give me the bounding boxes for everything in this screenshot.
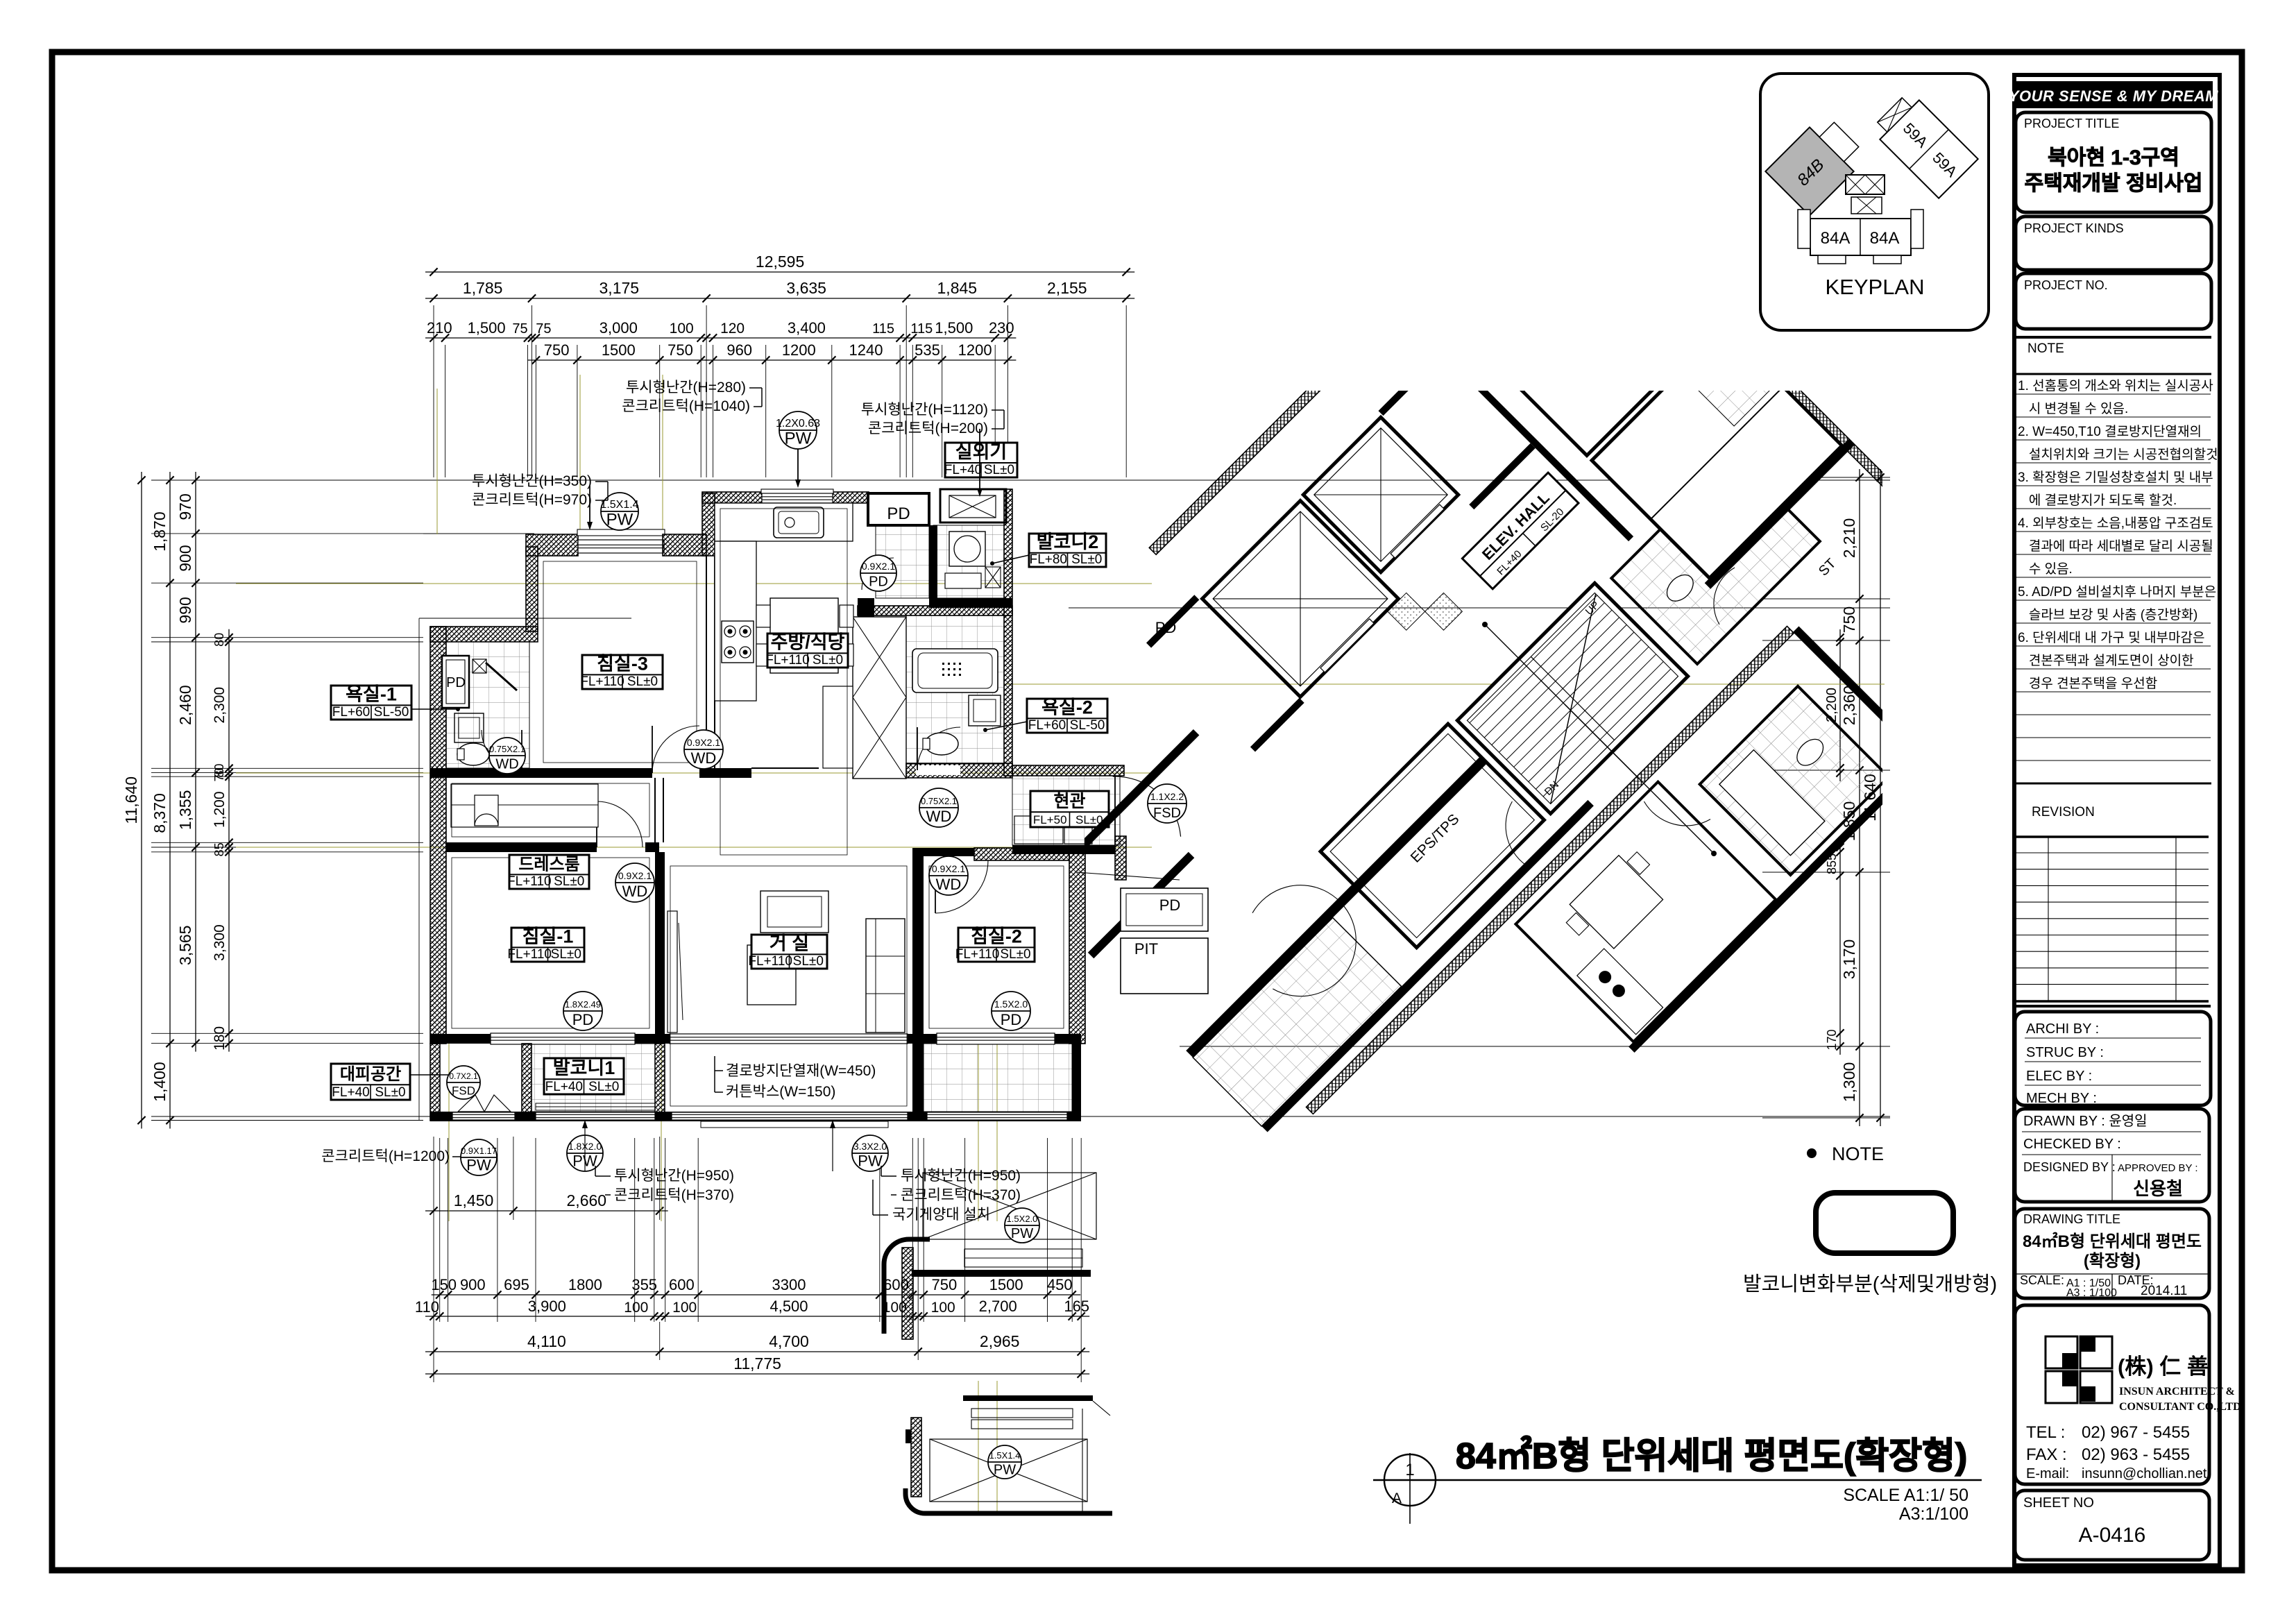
svg-text:북아현 1-3구역: 북아현 1-3구역 bbox=[2048, 146, 2179, 169]
svg-text:설치위치와 크기는 시공전협의할것.: 설치위치와 크기는 시공전협의할것. bbox=[2018, 447, 2222, 462]
svg-text:FL+40: FL+40 bbox=[332, 1085, 369, 1100]
svg-text:FL+110: FL+110 bbox=[507, 947, 552, 962]
svg-text:210: 210 bbox=[427, 319, 452, 337]
svg-text:1,870: 1,870 bbox=[151, 511, 169, 552]
svg-text:MECH BY :: MECH BY : bbox=[2026, 1091, 2097, 1106]
svg-text:투시형난간(H=280): 투시형난간(H=280) bbox=[626, 380, 746, 396]
svg-text:535: 535 bbox=[915, 341, 940, 359]
svg-text:165: 165 bbox=[1064, 1298, 1089, 1315]
svg-text:1,200: 1,200 bbox=[212, 791, 228, 828]
svg-text:355: 355 bbox=[631, 1276, 657, 1293]
svg-text:SCALE A1:1/ 50: SCALE A1:1/ 50 bbox=[1843, 1486, 1968, 1505]
svg-text:110: 110 bbox=[415, 1298, 439, 1316]
svg-text:SL±0: SL±0 bbox=[375, 1085, 405, 1100]
svg-text:견본주택과 설계도면이 상이한: 견본주택과 설계도면이 상이한 bbox=[2018, 653, 2194, 668]
svg-text:SCALE:: SCALE: bbox=[2020, 1273, 2064, 1287]
svg-text:3,170: 3,170 bbox=[1840, 940, 1858, 980]
svg-text:PROJECT TITLE: PROJECT TITLE bbox=[2024, 117, 2119, 130]
svg-text:84㎡B형 단위세대 평면도(확장형): 84㎡B형 단위세대 평면도(확장형) bbox=[1456, 1436, 1967, 1477]
svg-text:A3 : 1/100: A3 : 1/100 bbox=[2066, 1287, 2117, 1299]
svg-text:230: 230 bbox=[989, 319, 1014, 337]
svg-text:75: 75 bbox=[536, 321, 551, 337]
svg-text:PD: PD bbox=[572, 1011, 594, 1028]
svg-text:3300: 3300 bbox=[772, 1276, 806, 1293]
svg-text:SL±0: SL±0 bbox=[813, 653, 843, 668]
svg-text:PW: PW bbox=[994, 1462, 1016, 1477]
svg-text:1200: 1200 bbox=[782, 341, 816, 359]
svg-text:1,400: 1,400 bbox=[151, 1062, 169, 1102]
svg-text:1. 선홈통의 개소와 위치는 실시공사: 1. 선홈통의 개소와 위치는 실시공사 bbox=[2018, 378, 2213, 393]
svg-text:NOTE: NOTE bbox=[1832, 1144, 1884, 1164]
svg-text:SL±0: SL±0 bbox=[554, 874, 584, 889]
svg-text:2,700: 2,700 bbox=[979, 1298, 1017, 1315]
svg-text:NOTE: NOTE bbox=[2027, 341, 2064, 356]
svg-text:ARCHI BY :: ARCHI BY : bbox=[2026, 1021, 2099, 1037]
svg-text:0.9X2.1: 0.9X2.1 bbox=[862, 561, 895, 572]
svg-text:1,300: 1,300 bbox=[1840, 1062, 1858, 1103]
svg-text:TEL :: TEL : bbox=[2026, 1423, 2065, 1442]
svg-text:WD: WD bbox=[495, 757, 518, 772]
svg-text:FL+80: FL+80 bbox=[1030, 552, 1067, 567]
svg-text:E-mail:: E-mail: bbox=[2026, 1466, 2069, 1481]
svg-text:CHECKED BY :: CHECKED BY : bbox=[2023, 1137, 2121, 1152]
svg-text:900: 900 bbox=[460, 1276, 486, 1293]
svg-text:2,965: 2,965 bbox=[980, 1332, 1020, 1350]
svg-text:150: 150 bbox=[431, 1276, 457, 1293]
svg-text:(株) 仁 善: (株) 仁 善 bbox=[2118, 1354, 2209, 1379]
svg-text:욕실-2: 욕실-2 bbox=[1041, 697, 1093, 717]
svg-text:02) 967 - 5455: 02) 967 - 5455 bbox=[2082, 1423, 2190, 1442]
svg-text:0.9X2.1: 0.9X2.1 bbox=[618, 870, 652, 881]
svg-text:1,450: 1,450 bbox=[454, 1191, 494, 1209]
svg-text:1,500: 1,500 bbox=[468, 319, 506, 337]
svg-text:콘크리트턱(H=370): 콘크리트턱(H=370) bbox=[614, 1187, 734, 1203]
svg-text:APPROVED BY :: APPROVED BY : bbox=[2118, 1162, 2198, 1174]
svg-text:슬라브 보강 및 사춤 (층간방화): 슬라브 보강 및 사춤 (층간방화) bbox=[2018, 607, 2197, 622]
svg-text:FL+60: FL+60 bbox=[332, 705, 370, 720]
svg-text:990: 990 bbox=[176, 597, 194, 623]
svg-text:PD: PD bbox=[446, 675, 466, 690]
svg-text:발코니2: 발코니2 bbox=[1037, 532, 1099, 552]
svg-text:02) 963 - 5455: 02) 963 - 5455 bbox=[2082, 1445, 2190, 1464]
svg-text:FSD: FSD bbox=[452, 1084, 475, 1097]
svg-text:신용철: 신용철 bbox=[2133, 1178, 2183, 1199]
svg-text:수 있음.: 수 있음. bbox=[2018, 561, 2073, 577]
svg-text:FL+40: FL+40 bbox=[545, 1080, 583, 1094]
svg-text:4. 외부창호는 소음,내풍압 구조검토: 4. 외부창호는 소음,내풍압 구조검토 bbox=[2018, 516, 2213, 531]
svg-text:PD: PD bbox=[887, 504, 910, 523]
svg-text:120: 120 bbox=[720, 321, 745, 337]
svg-text:2,460: 2,460 bbox=[176, 685, 194, 725]
svg-text:insunn@chollian.net: insunn@chollian.net bbox=[2082, 1466, 2207, 1481]
svg-text:2,660: 2,660 bbox=[567, 1191, 607, 1209]
svg-text:침실-2: 침실-2 bbox=[971, 926, 1022, 946]
svg-text:100: 100 bbox=[931, 1300, 955, 1316]
svg-text:침실-1: 침실-1 bbox=[522, 926, 574, 946]
svg-text:PROJECT KINDS: PROJECT KINDS bbox=[2024, 221, 2124, 235]
svg-text:드레스룸: 드레스룸 bbox=[518, 855, 579, 874]
svg-text:투시형난간(H=1120): 투시형난간(H=1120) bbox=[861, 402, 988, 418]
svg-text:11,640: 11,640 bbox=[122, 776, 140, 824]
svg-text:WD: WD bbox=[622, 883, 648, 900]
svg-text:1800: 1800 bbox=[568, 1276, 602, 1293]
svg-text:FL+110: FL+110 bbox=[580, 674, 624, 689]
svg-text:콘크리트턱(H=1040): 콘크리트턱(H=1040) bbox=[622, 398, 750, 414]
svg-text:SL±0: SL±0 bbox=[551, 947, 581, 962]
svg-text:ELEC BY :: ELEC BY : bbox=[2026, 1069, 2092, 1084]
svg-text:1.8X2.49: 1.8X2.49 bbox=[565, 999, 601, 1010]
svg-text:2014.11: 2014.11 bbox=[2141, 1284, 2187, 1298]
svg-text:FL+50: FL+50 bbox=[1033, 813, 1067, 826]
svg-text:450: 450 bbox=[1047, 1276, 1073, 1293]
svg-text:750: 750 bbox=[932, 1276, 958, 1293]
svg-text:0.7X2.1: 0.7X2.1 bbox=[449, 1071, 478, 1081]
svg-text:0.75X2.1: 0.75X2.1 bbox=[489, 744, 525, 754]
svg-text:12,595: 12,595 bbox=[756, 253, 804, 271]
svg-text:YOUR SENSE & MY DREAM: YOUR SENSE & MY DREAM bbox=[2009, 87, 2218, 105]
svg-text:SL±0: SL±0 bbox=[1000, 947, 1030, 962]
svg-text:0.9X2.1: 0.9X2.1 bbox=[932, 863, 965, 874]
svg-text:커튼박스(W=150): 커튼박스(W=150) bbox=[726, 1084, 835, 1100]
svg-text:SHEET NO: SHEET NO bbox=[2023, 1495, 2094, 1511]
svg-text:6. 단위세대 내 가구 및 내부마감은: 6. 단위세대 내 가구 및 내부마감은 bbox=[2018, 630, 2204, 645]
svg-text:욕실-1: 욕실-1 bbox=[346, 683, 397, 704]
svg-text:FL+60: FL+60 bbox=[1028, 718, 1066, 733]
svg-text:70: 70 bbox=[212, 767, 226, 781]
svg-text:1.2X0.63: 1.2X0.63 bbox=[776, 418, 820, 430]
svg-text:침실-3: 침실-3 bbox=[597, 653, 648, 674]
svg-text:1240: 1240 bbox=[849, 341, 883, 359]
svg-text:DRAWING TITLE: DRAWING TITLE bbox=[2023, 1212, 2120, 1226]
svg-text:투시형난간(H=950): 투시형난간(H=950) bbox=[901, 1168, 1021, 1184]
svg-text:SL-50: SL-50 bbox=[1070, 718, 1105, 733]
svg-text:8,370: 8,370 bbox=[151, 793, 169, 833]
svg-text:0.75X2.1: 0.75X2.1 bbox=[921, 796, 957, 806]
svg-text:3,900: 3,900 bbox=[528, 1298, 566, 1315]
svg-text:FL+40: FL+40 bbox=[944, 463, 982, 477]
svg-text:4,500: 4,500 bbox=[769, 1298, 808, 1315]
svg-text:170: 170 bbox=[1825, 1029, 1839, 1050]
svg-text:0.9X1.17: 0.9X1.17 bbox=[461, 1146, 497, 1156]
svg-text:750: 750 bbox=[544, 341, 570, 359]
svg-text:84㎡B형 단위세대 평면도: 84㎡B형 단위세대 평면도 bbox=[2023, 1232, 2202, 1251]
svg-text:결로방지단열재(W=450): 결로방지단열재(W=450) bbox=[726, 1063, 876, 1079]
svg-text:PW: PW bbox=[785, 429, 812, 448]
svg-text:거 실: 거 실 bbox=[769, 933, 809, 953]
svg-text:750: 750 bbox=[667, 341, 693, 359]
svg-text:A3:1/100: A3:1/100 bbox=[1899, 1504, 1968, 1524]
svg-text:180: 180 bbox=[212, 1026, 228, 1051]
svg-text:콘크리트턱(H=1200): 콘크리트턱(H=1200) bbox=[321, 1148, 450, 1164]
svg-text:80: 80 bbox=[212, 633, 226, 647]
svg-text:FSD: FSD bbox=[1153, 806, 1181, 821]
svg-text:PW: PW bbox=[466, 1157, 491, 1174]
svg-text:SL±0: SL±0 bbox=[793, 954, 824, 969]
svg-text:SL±0: SL±0 bbox=[984, 463, 1014, 477]
svg-text:시 변경될 수 있음.: 시 변경될 수 있음. bbox=[2018, 401, 2128, 416]
svg-text:결과에 따라 세대별로 달리 시공될: 결과에 따라 세대별로 달리 시공될 bbox=[2018, 538, 2213, 554]
svg-text:960: 960 bbox=[726, 341, 752, 359]
svg-text:(확장형): (확장형) bbox=[2084, 1252, 2141, 1271]
svg-text:SL±0: SL±0 bbox=[588, 1080, 619, 1094]
svg-text:4,700: 4,700 bbox=[769, 1332, 809, 1350]
svg-text:WD: WD bbox=[936, 876, 962, 893]
svg-text:PD: PD bbox=[1159, 897, 1181, 914]
svg-text:REVISION: REVISION bbox=[2032, 805, 2095, 819]
svg-text:3,565: 3,565 bbox=[176, 926, 194, 966]
svg-text:PW: PW bbox=[606, 510, 633, 529]
svg-text:KEYPLAN: KEYPLAN bbox=[1825, 275, 1924, 299]
svg-text:1,355: 1,355 bbox=[176, 790, 194, 831]
svg-text:STRUC BY :: STRUC BY : bbox=[2026, 1045, 2104, 1060]
svg-text:750: 750 bbox=[1840, 606, 1858, 633]
svg-text:1200: 1200 bbox=[958, 341, 992, 359]
svg-text:1,785: 1,785 bbox=[463, 279, 503, 297]
svg-text:3,000: 3,000 bbox=[599, 319, 638, 337]
svg-text:84A: 84A bbox=[1821, 229, 1851, 248]
svg-text:2,155: 2,155 bbox=[1047, 279, 1087, 297]
svg-text:DESIGNED BY :: DESIGNED BY : bbox=[2023, 1160, 2116, 1174]
svg-text:5. AD/PD 설비설치후 나머지 부분은: 5. AD/PD 설비설치후 나머지 부분은 bbox=[2018, 584, 2216, 600]
svg-text:현관: 현관 bbox=[1053, 792, 1085, 811]
svg-text:실외기: 실외기 bbox=[955, 441, 1007, 462]
svg-text:3.3X2.0: 3.3X2.0 bbox=[853, 1141, 887, 1152]
svg-text:3,400: 3,400 bbox=[788, 319, 826, 337]
svg-text:주방/식당: 주방/식당 bbox=[771, 631, 845, 652]
svg-text:주택재개발 정비사업: 주택재개발 정비사업 bbox=[2025, 172, 2203, 195]
svg-text:75: 75 bbox=[512, 321, 527, 337]
svg-text:PIT: PIT bbox=[1134, 940, 1158, 958]
svg-text:CONSULTANT CO.,LTD.: CONSULTANT CO.,LTD. bbox=[2119, 1401, 2244, 1413]
svg-text:4,110: 4,110 bbox=[527, 1332, 566, 1350]
svg-text:3,175: 3,175 bbox=[599, 279, 640, 297]
svg-text:85: 85 bbox=[212, 842, 226, 856]
svg-text:1500: 1500 bbox=[989, 1276, 1023, 1293]
svg-text:1.1X2.2: 1.1X2.2 bbox=[1150, 791, 1184, 802]
svg-text:대피공간: 대피공간 bbox=[340, 1065, 401, 1084]
svg-text:1: 1 bbox=[1405, 1461, 1414, 1479]
svg-text:100: 100 bbox=[670, 321, 694, 337]
svg-text:PW: PW bbox=[858, 1153, 883, 1170]
svg-text:695: 695 bbox=[504, 1276, 529, 1293]
svg-text:600: 600 bbox=[669, 1276, 695, 1293]
svg-text:FAX :: FAX : bbox=[2026, 1445, 2067, 1464]
svg-text:FL+110: FL+110 bbox=[765, 653, 810, 668]
svg-text:A: A bbox=[1392, 1490, 1402, 1506]
svg-text:A-0416: A-0416 bbox=[2079, 1524, 2146, 1547]
svg-text:115: 115 bbox=[910, 321, 933, 337]
svg-text:1.5X2.0: 1.5X2.0 bbox=[994, 999, 1028, 1010]
svg-text:900: 900 bbox=[176, 545, 194, 571]
svg-text:11,775: 11,775 bbox=[733, 1354, 781, 1373]
svg-text:SL-50: SL-50 bbox=[374, 705, 409, 720]
svg-text:DRAWN BY : 윤영일: DRAWN BY : 윤영일 bbox=[2023, 1113, 2148, 1129]
svg-text:PW: PW bbox=[1011, 1226, 1033, 1241]
svg-text:WD: WD bbox=[926, 808, 952, 825]
svg-text:경우 견본주택을 우선함: 경우 견본주택을 우선함 bbox=[2018, 676, 2157, 691]
svg-text:국기게양대 설치: 국기게양대 설치 bbox=[892, 1207, 990, 1223]
svg-text:PROJECT NO.: PROJECT NO. bbox=[2024, 278, 2108, 292]
svg-text:2,210: 2,210 bbox=[1840, 518, 1858, 559]
svg-text:1.5X2.0: 1.5X2.0 bbox=[1007, 1214, 1038, 1224]
svg-text:SL±0: SL±0 bbox=[1071, 552, 1102, 567]
svg-text:100: 100 bbox=[672, 1300, 697, 1316]
svg-text:1,500: 1,500 bbox=[935, 319, 973, 337]
svg-text:2,300: 2,300 bbox=[212, 687, 228, 724]
svg-text:1,845: 1,845 bbox=[937, 279, 978, 297]
svg-text:PD: PD bbox=[1001, 1011, 1022, 1028]
svg-text:100: 100 bbox=[624, 1300, 648, 1316]
svg-text:WD: WD bbox=[691, 749, 717, 767]
svg-text:3. 확장형은 기밀성창호설치 및 내부: 3. 확장형은 기밀성창호설치 및 내부 bbox=[2018, 470, 2213, 485]
svg-text:콘크리트턱(H=370): 콘크리트턱(H=370) bbox=[901, 1187, 1021, 1203]
svg-text:콘크리트턱(H=970): 콘크리트턱(H=970) bbox=[472, 492, 592, 508]
svg-text:PD: PD bbox=[869, 575, 888, 590]
svg-text:1.5X1.4: 1.5X1.4 bbox=[989, 1450, 1021, 1461]
svg-text:3,635: 3,635 bbox=[786, 279, 826, 297]
svg-text:970: 970 bbox=[176, 493, 194, 520]
svg-text:발코니1: 발코니1 bbox=[553, 1057, 615, 1078]
svg-text:1500: 1500 bbox=[602, 341, 636, 359]
svg-text:0.9X2.1: 0.9X2.1 bbox=[687, 737, 720, 748]
svg-text:투시형난간(H=950): 투시형난간(H=950) bbox=[614, 1168, 734, 1184]
svg-text:2. W=450,T10 결로방지단열재의: 2. W=450,T10 결로방지단열재의 bbox=[2018, 424, 2202, 439]
svg-text:FL+110: FL+110 bbox=[955, 947, 1000, 962]
svg-text:투시형난간(H=350): 투시형난간(H=350) bbox=[472, 473, 592, 489]
svg-text:84A: 84A bbox=[1870, 229, 1900, 248]
svg-text:INSUN ARCHITECT &: INSUN ARCHITECT & bbox=[2119, 1386, 2235, 1397]
svg-text:3,300: 3,300 bbox=[212, 924, 228, 961]
svg-text:SL±0: SL±0 bbox=[627, 674, 658, 689]
svg-text:FL+110: FL+110 bbox=[748, 954, 792, 969]
svg-text:발코니변화부분(삭제및개방형): 발코니변화부분(삭제및개방형) bbox=[1743, 1273, 1997, 1295]
svg-text:115: 115 bbox=[872, 321, 894, 337]
svg-text:콘크리트턱(H=200): 콘크리트턱(H=200) bbox=[868, 420, 988, 436]
svg-text:FL+110: FL+110 bbox=[507, 874, 552, 889]
svg-text:에 결로방지가 되도록 할것.: 에 결로방지가 되도록 할것. bbox=[2018, 493, 2177, 508]
